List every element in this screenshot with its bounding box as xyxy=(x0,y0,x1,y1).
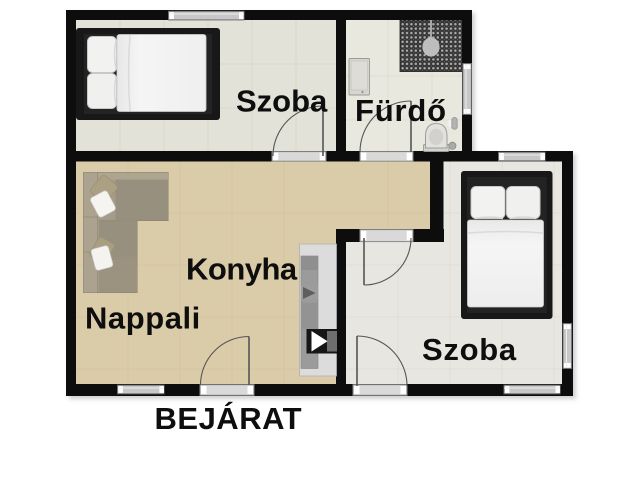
svg-text:Nappali: Nappali xyxy=(85,301,201,336)
svg-text:BEJÁRAT: BEJÁRAT xyxy=(155,401,303,436)
svg-text:Szoba: Szoba xyxy=(422,332,517,367)
svg-text:Konyha: Konyha xyxy=(186,252,298,287)
svg-text:Szoba: Szoba xyxy=(236,84,328,119)
svg-text:Fürdő: Fürdő xyxy=(355,93,447,128)
